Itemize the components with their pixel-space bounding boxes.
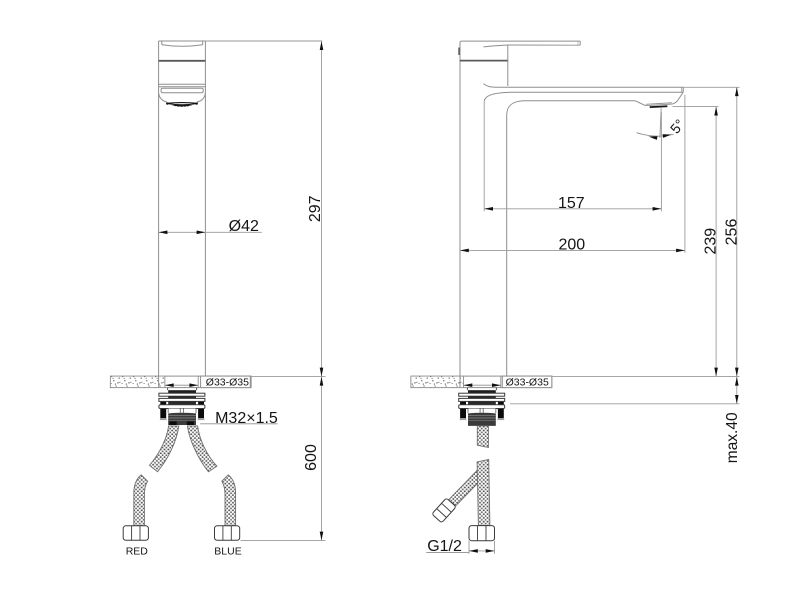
svg-text:M32×1.5: M32×1.5 <box>215 410 278 427</box>
svg-text:Ø33-Ø35: Ø33-Ø35 <box>506 376 549 388</box>
svg-text:Ø42: Ø42 <box>229 218 259 235</box>
svg-text:max.40: max.40 <box>724 412 741 463</box>
svg-text:157: 157 <box>558 195 585 212</box>
svg-text:BLUE: BLUE <box>214 545 241 557</box>
svg-text:200: 200 <box>558 237 585 254</box>
svg-text:256: 256 <box>724 219 741 246</box>
svg-text:239: 239 <box>703 228 720 255</box>
svg-text:297: 297 <box>307 195 324 222</box>
svg-text:RED: RED <box>126 545 149 557</box>
svg-text:Ø33-Ø35: Ø33-Ø35 <box>206 376 249 388</box>
svg-text:600: 600 <box>303 444 320 471</box>
